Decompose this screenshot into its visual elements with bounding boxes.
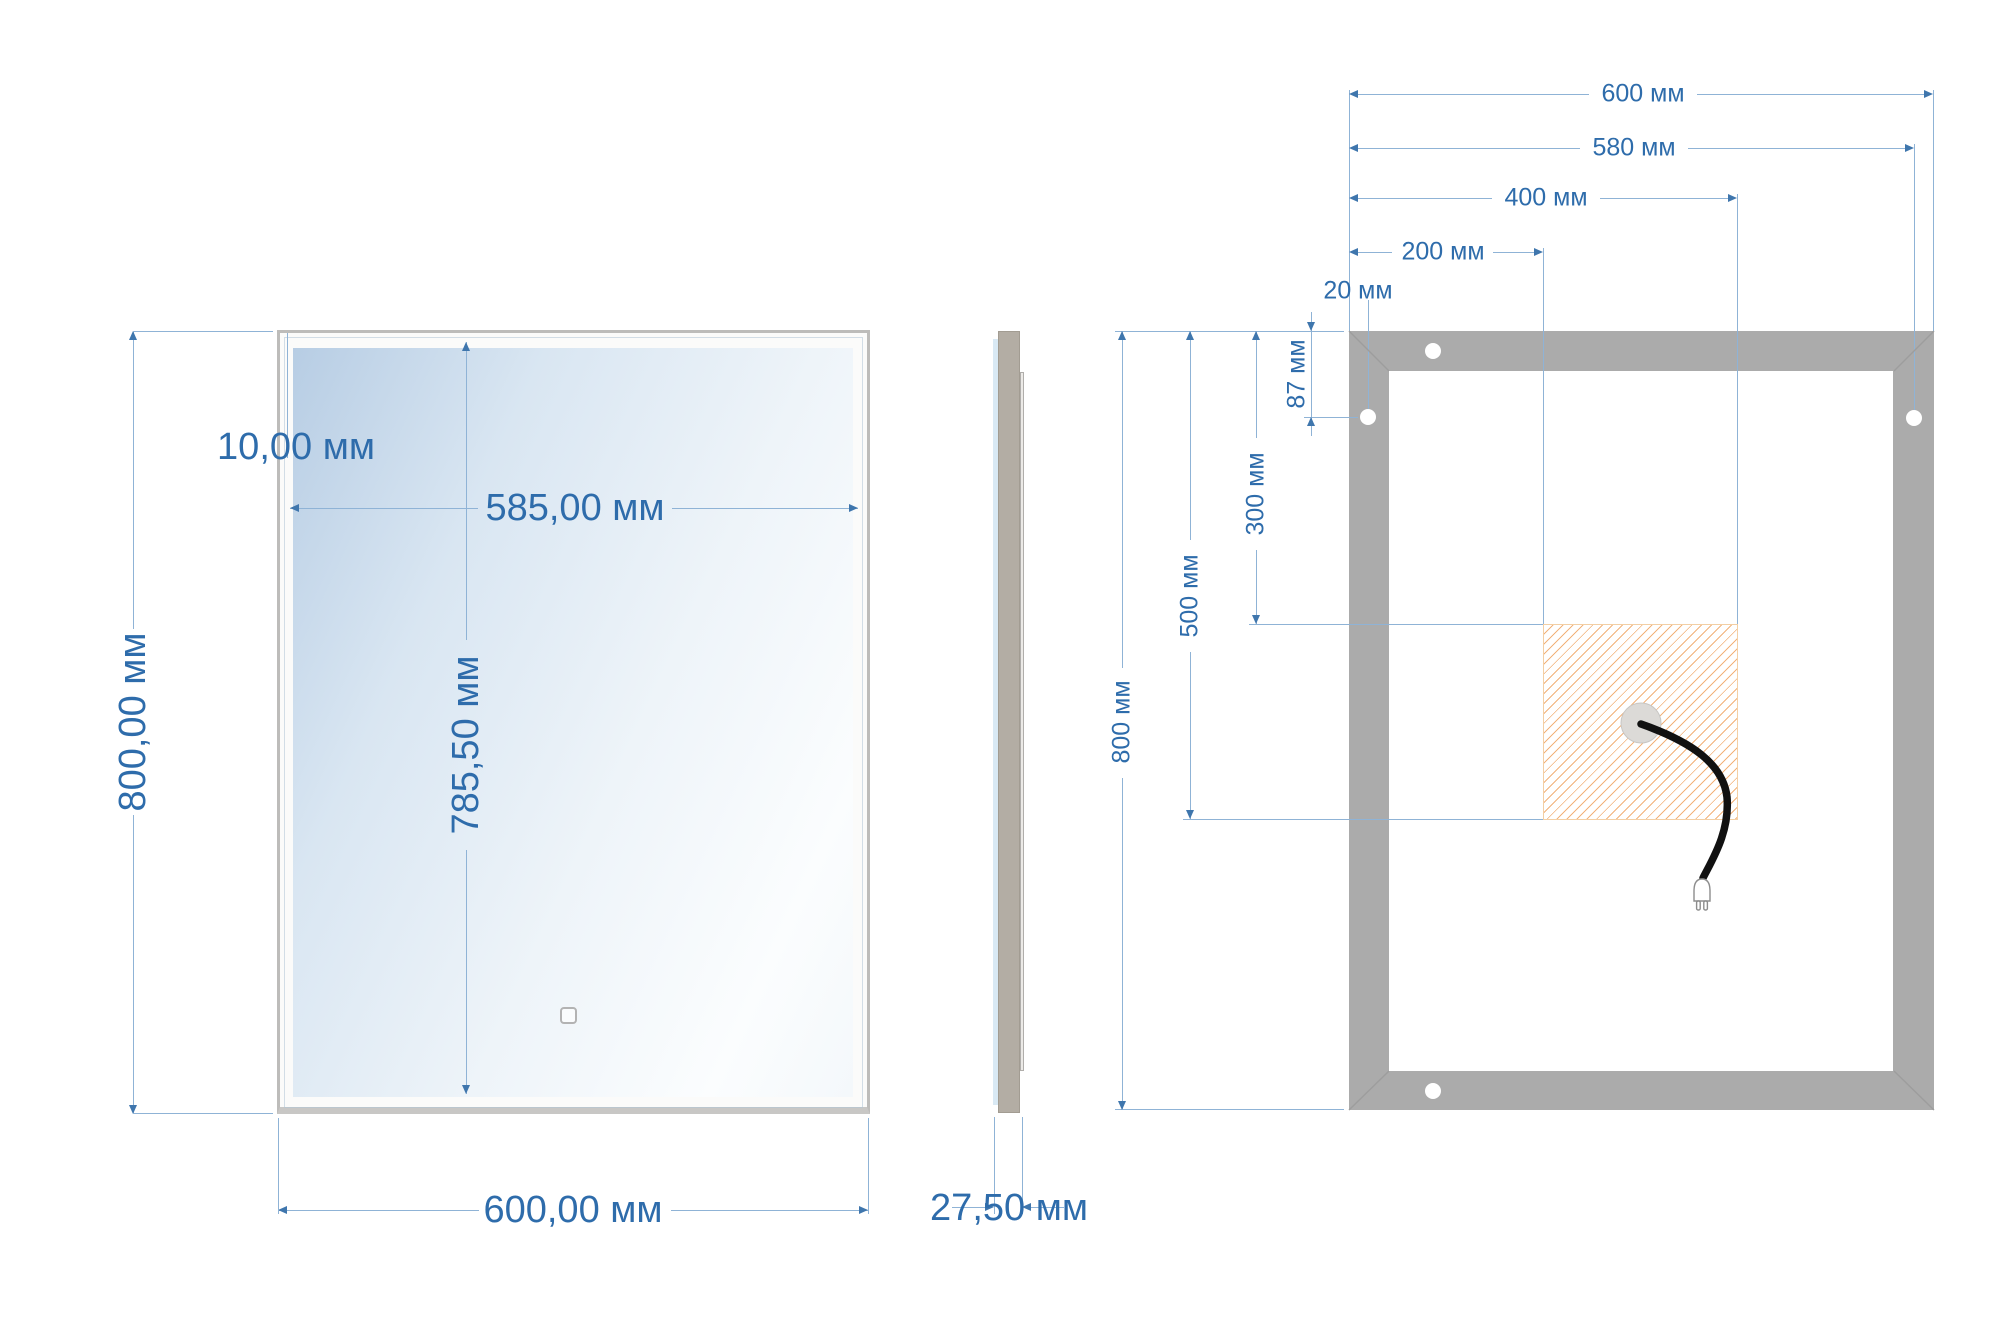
dim-extension-line [1737, 194, 1738, 624]
dim-arrow [129, 331, 137, 340]
dim-arrow [1252, 615, 1260, 624]
dim-label-back-height: 800 мм [1110, 680, 1135, 763]
dim-extension-line [133, 1113, 273, 1114]
dim-line [1122, 331, 1123, 668]
dim-label-front-glass-width: 585,00 мм [485, 489, 664, 527]
dim-arrow [849, 504, 858, 512]
dim-line [1256, 550, 1257, 624]
dim-label-back-hole-y: 87 мм [1285, 339, 1310, 408]
dim-line [1352, 148, 1580, 149]
dim-arrow [1349, 90, 1358, 98]
dim-line [466, 850, 467, 1094]
side-view-bracket [1020, 372, 1024, 1071]
mounting-hole-icon [1906, 410, 1922, 426]
touch-sensor-icon [560, 1007, 577, 1024]
dim-arrow [1924, 90, 1933, 98]
dim-arrow [1349, 248, 1358, 256]
mounting-hole-icon [1360, 409, 1376, 425]
dim-extension-line [133, 331, 273, 332]
dim-line [133, 331, 134, 629]
dim-line [466, 342, 467, 640]
dim-line [1493, 252, 1534, 253]
mounting-hole-icon [1425, 343, 1441, 359]
dim-line [672, 508, 858, 509]
dim-arrow [1118, 1101, 1126, 1110]
dim-extension-line [868, 1118, 869, 1214]
dim-label-back-driver-right: 400 мм [1504, 186, 1587, 211]
dim-arrow [1349, 194, 1358, 202]
dim-arrow [1728, 194, 1737, 202]
dim-label-back-driver-bottom: 500 мм [1178, 554, 1203, 637]
dim-label-front-width: 600,00 мм [483, 1191, 662, 1229]
dim-line [1352, 94, 1589, 95]
dim-arrow [462, 342, 470, 351]
dim-extension-line [1115, 331, 1344, 332]
dim-label-front-frame-thickness: 10,00 мм [217, 428, 375, 466]
dim-extension-line [1543, 248, 1544, 624]
dim-arrow [1186, 810, 1194, 819]
dim-arrow [1186, 331, 1194, 340]
side-view-body [998, 331, 1020, 1113]
dim-extension-line [1249, 624, 1543, 625]
dim-line [671, 1210, 868, 1211]
dim-label-back-driver-left: 200 мм [1401, 240, 1484, 265]
dim-line [278, 1210, 479, 1211]
dim-label-back-hole-x: 20 мм [1323, 279, 1392, 304]
dim-arrow [1905, 144, 1914, 152]
dim-label-back-driver-top: 300 мм [1244, 452, 1269, 535]
dim-line [1190, 331, 1191, 540]
dim-line [1688, 148, 1905, 149]
dim-extension-line [278, 1118, 279, 1214]
mounting-hole-icon [1425, 1083, 1441, 1099]
dim-arrow [1252, 331, 1260, 340]
dim-label-front-glass-height: 785,50 мм [447, 655, 485, 834]
dim-label-side-depth: 27,50 мм [930, 1189, 1088, 1227]
dim-extension-line [1115, 1109, 1344, 1110]
dim-line [133, 815, 134, 1114]
dim-line [1600, 198, 1728, 199]
technical-drawing-canvas: 800,00 мм 600,00 мм 585,00 мм 785,50 мм … [0, 0, 2000, 1333]
dim-arrow [1118, 331, 1126, 340]
dim-line [1697, 94, 1931, 95]
dim-arrow [1534, 248, 1543, 256]
dim-line [1256, 331, 1257, 438]
led-driver-zone-icon [1543, 624, 1738, 820]
dim-line [1190, 652, 1191, 819]
dim-arrow [1307, 322, 1315, 331]
dim-label-back-holes-span: 580 мм [1592, 136, 1675, 161]
dim-extension-line [1183, 819, 1543, 820]
dim-extension-line [1368, 300, 1369, 409]
dim-extension-line [1914, 144, 1915, 410]
dim-line [1122, 778, 1123, 1110]
dim-arrow [462, 1085, 470, 1094]
dim-arrow [290, 504, 299, 512]
dim-arrow [278, 1206, 287, 1214]
dim-arrow [859, 1206, 868, 1214]
dim-line [290, 508, 478, 509]
dim-label-back-width: 600 мм [1601, 82, 1684, 107]
dim-label-front-height: 800,00 мм [114, 632, 152, 811]
dim-extension-line [1933, 90, 1934, 331]
front-mirror-glass [293, 348, 853, 1097]
dim-arrow [1307, 417, 1315, 426]
dim-line [1352, 198, 1492, 199]
dim-arrow [1349, 144, 1358, 152]
dim-line [1352, 252, 1392, 253]
